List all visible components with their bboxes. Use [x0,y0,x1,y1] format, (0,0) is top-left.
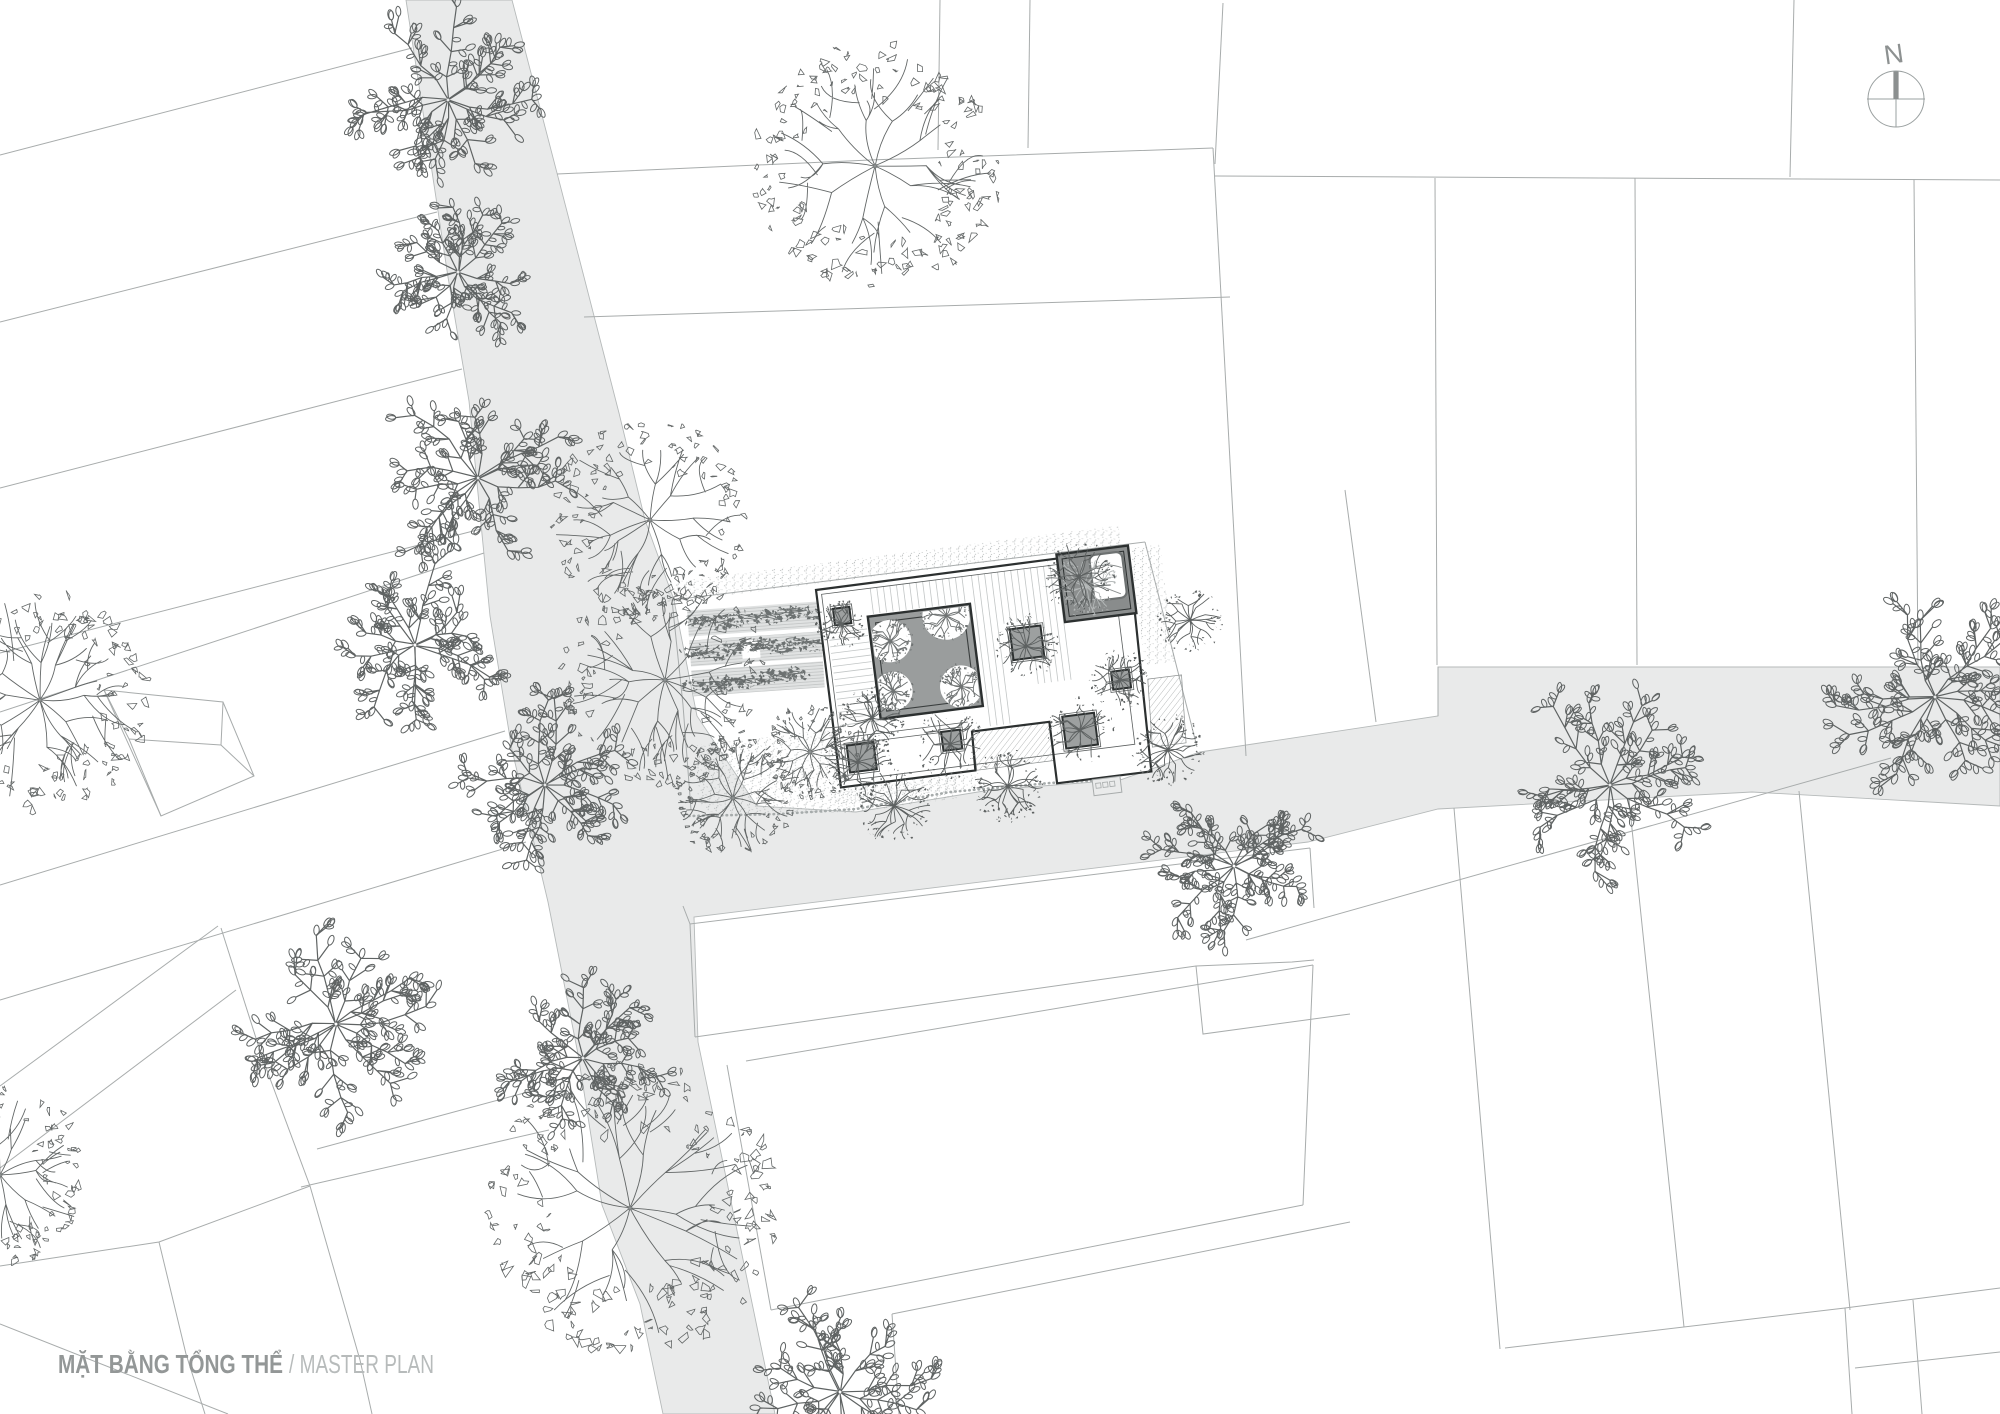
svg-text:MẶT BẰNG TỔNG THỂ: MẶT BẰNG TỔNG THỂ [58,1349,283,1379]
svg-text:/ MASTER PLAN: / MASTER PLAN [289,1349,434,1379]
svg-text:N: N [1882,38,1905,70]
